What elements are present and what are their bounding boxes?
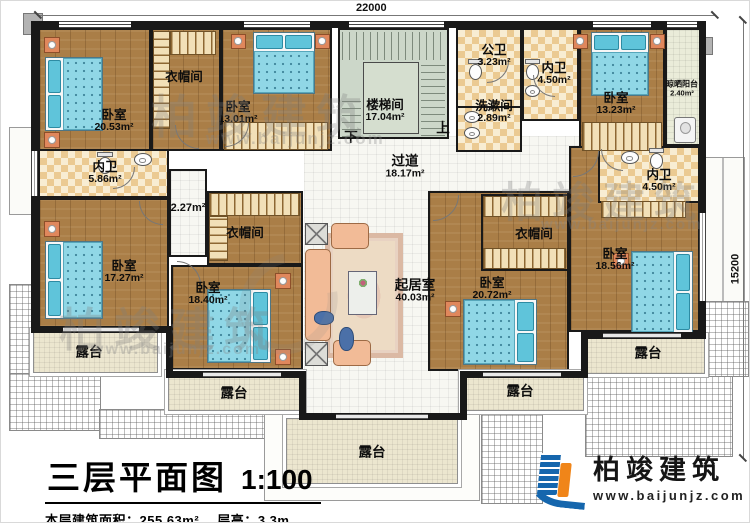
nightstand [44,37,60,53]
window [699,213,706,301]
roof-hatch [9,373,101,431]
armchair [331,223,369,249]
nightstand [275,349,291,365]
nightstand [445,301,461,317]
label-cloakroom-top: 衣帽间 [165,70,203,84]
plan-area-value: 255.63m² [140,513,200,523]
dimension-line-right [743,21,744,459]
plan-height-value: 3.3m [258,513,290,523]
person-figure [339,327,354,351]
washing-machine [674,117,696,143]
wardrobe [601,201,686,218]
window [244,21,310,28]
sink [464,127,480,139]
label-terrace: 露台 [507,383,534,398]
nightstand [44,132,60,148]
dimension-top: 22000 [353,2,390,14]
sink [134,153,152,166]
roof-hatch [702,301,749,377]
label-cloakroom-center: 衣帽间 [226,226,264,240]
nightstand [573,34,588,49]
label-bedroom-center-bottom: 卧室18.40m² [188,281,227,307]
label-bedroom-top-left: 卧室20.53m² [94,108,133,134]
plan-area-label: 本层建筑面积： [45,513,140,523]
label-bedroom-top-center: 卧室13.01m² [218,100,257,126]
label-living-room: 起居室40.03m² [395,278,436,305]
window [593,21,651,28]
label-washroom: 洗漱间2.89m² [475,99,513,125]
wardrobe [209,193,300,216]
sliding-door [483,372,561,377]
label-ensuite-right: 内卫4.50m² [642,168,675,194]
nightstand [44,221,60,237]
wardrobe [209,216,228,261]
sliding-door [203,372,281,377]
bed [463,299,537,365]
bed [253,32,315,94]
side-table [305,223,328,245]
label-bedroom-right-center: 卧室20.72m² [472,276,511,302]
sliding-door [603,333,681,338]
plan-title: 三层平面图 [47,451,227,499]
label-terrace: 露台 [76,344,103,359]
nightstand [650,34,665,49]
dimension-right: 15200 [729,251,741,288]
label-small-area: 2.27m² [171,202,206,214]
building-logo-icon [529,451,583,509]
roof-hatch [585,375,733,457]
label-bedroom-top-right: 卧室13.23m² [596,91,635,117]
nightstand [231,34,246,49]
window [59,21,131,28]
label-ensuite-left: 内卫5.86m² [88,160,121,186]
label-corridor: 过道18.17m² [385,154,424,181]
logo-company-name: 柏竣建筑 [593,457,745,484]
label-stairwell: 楼梯间17.04m² [365,98,404,124]
sofa [305,249,331,341]
nightstand [275,273,291,289]
label-terrace: 露台 [635,345,662,360]
label-stairs-up: 上 [436,120,450,135]
coffee-table [348,271,377,315]
toilet [650,153,663,169]
label-bedroom-right: 卧室18.56m² [595,247,634,273]
person-figure [314,311,334,325]
window [667,21,697,28]
wardrobe [582,122,662,151]
wardrobe [483,248,566,269]
bed [45,241,103,319]
sliding-door [63,327,139,332]
window [349,21,444,28]
label-ensuite-top: 内卫4.50m² [537,61,570,87]
side-table [305,342,328,366]
window [31,151,38,196]
label-terrace: 露台 [221,385,248,400]
wardrobe [483,196,566,217]
label-stairs-down: 下 [344,129,358,144]
label-bedroom-mid-left: 卧室17.27m² [104,259,143,285]
bed [631,251,693,333]
sliding-door [336,414,428,419]
title-block: 三层平面图 1:100 本层建筑面积：255.63m² 层高：3.3m [45,451,321,523]
plan-scale: 1:100 [241,464,313,496]
company-logo: 柏竣建筑 www.baijunjz.com [529,451,745,509]
dimension-line-top [37,15,716,16]
label-drying-balcony: 晾晒阳台2.40m² [666,80,698,97]
label-cloakroom-right: 衣帽间 [515,227,553,241]
side-ledge-left [9,127,33,215]
plan-info: 本层建筑面积：255.63m² 层高：3.3m [45,510,321,523]
label-terrace: 露台 [359,444,386,459]
sink [621,151,639,164]
label-public-bath: 公卫3.23m² [477,43,510,69]
floor-plan-canvas: 卧室20.53m² 衣帽间 卧室13.01m² 楼梯间17.04m² 公卫3.2… [0,0,750,523]
bed [591,32,649,96]
nightstand [315,34,330,49]
wall [460,371,467,420]
wardrobe [170,31,216,55]
logo-website-url: www.baijunjz.com [593,488,745,503]
stairs [342,32,445,60]
plan-height-label: 层高： [217,513,258,523]
